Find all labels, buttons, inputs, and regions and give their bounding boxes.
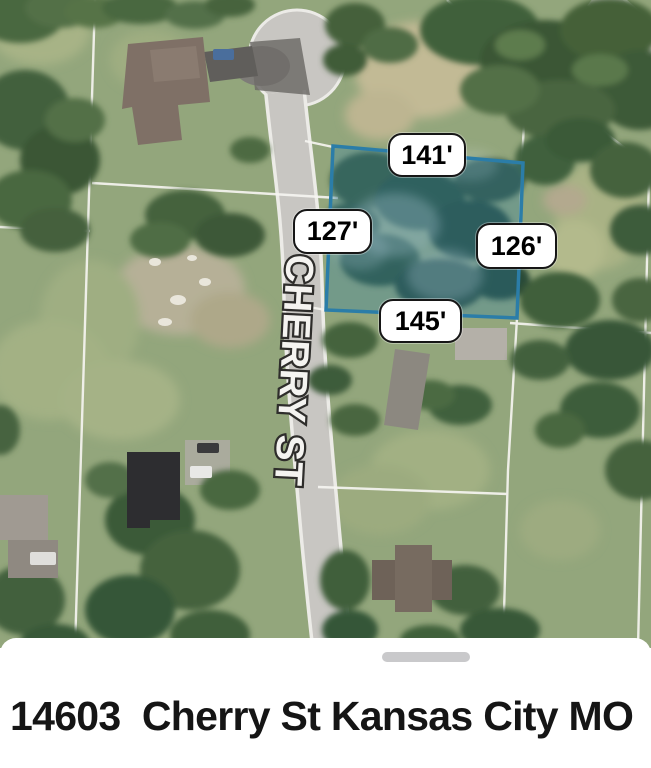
driveway-south <box>455 328 507 360</box>
outbuilding-far-left-1 <box>0 495 48 540</box>
sheet-drag-handle[interactable] <box>382 652 470 662</box>
address-caption: 14603 Cherry St Kansas City MO <box>10 696 633 737</box>
car-white-1 <box>190 466 212 478</box>
car-blue <box>213 49 234 60</box>
lot-dimension-left: 127' <box>293 209 372 254</box>
listing-screen: CHERRY ST 141' 127' 126' 145' 14603 Cher… <box>0 0 651 768</box>
aerial-photo[interactable]: CHERRY ST 141' 127' 126' 145' <box>0 0 651 648</box>
bottom-sheet: 14603 Cherry St Kansas City MO <box>0 638 651 768</box>
aerial-photo-svg: CHERRY ST <box>0 0 651 648</box>
car-dark <box>197 443 219 453</box>
car-white-2 <box>30 552 56 565</box>
lot-dimension-right: 126' <box>476 223 557 269</box>
lot-dimension-top: 141' <box>388 133 466 177</box>
house-black-roof <box>127 452 180 528</box>
lot-dimension-bottom: 145' <box>379 299 462 343</box>
